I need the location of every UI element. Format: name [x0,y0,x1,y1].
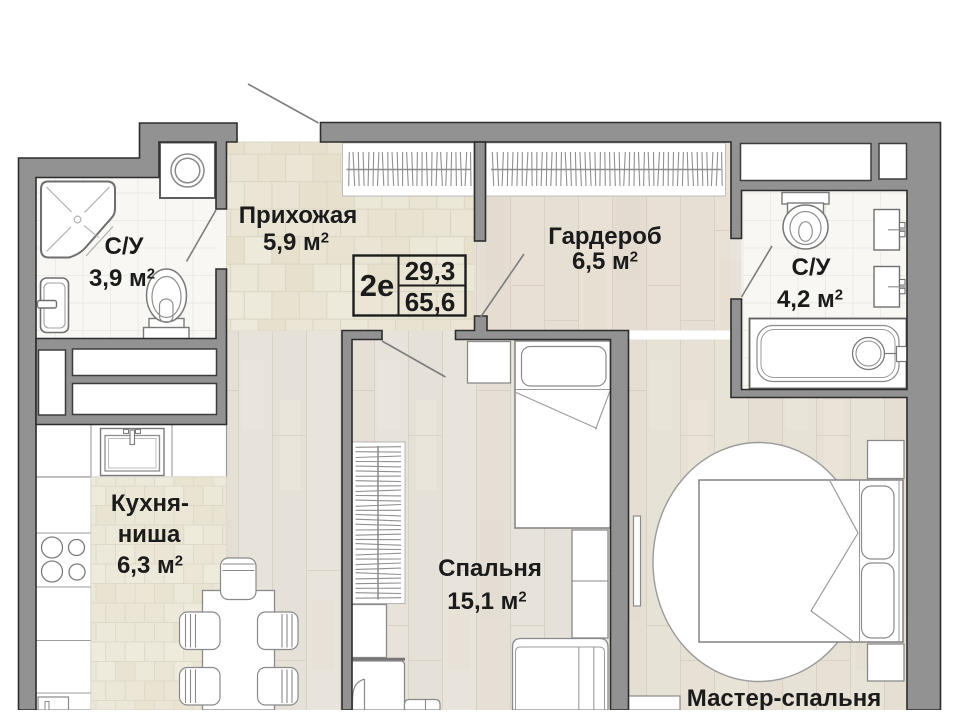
svg-text:29,3: 29,3 [405,256,456,286]
svg-text:С/У: С/У [105,233,145,260]
svg-text:2е: 2е [360,268,394,303]
svg-text:Гардероб: Гардероб [548,223,661,250]
svg-text:6,3 м2: 6,3 м2 [117,552,183,579]
svg-text:5,9 м2: 5,9 м2 [263,229,329,256]
svg-text:С/У: С/У [792,254,832,281]
svg-text:Прихожая: Прихожая [239,202,357,229]
svg-text:Мастер-спальня: Мастер-спальня [687,685,881,710]
svg-text:3,9 м2: 3,9 м2 [89,265,155,292]
svg-text:6,5 м2: 6,5 м2 [572,248,638,275]
svg-text:Спальня: Спальня [438,555,542,582]
svg-text:15,1 м2: 15,1 м2 [447,588,526,615]
svg-text:4,2 м2: 4,2 м2 [777,286,843,313]
svg-text:Кухня-: Кухня- [111,490,189,517]
svg-text:65,6: 65,6 [405,287,456,317]
svg-text:ниша: ниша [118,521,181,548]
